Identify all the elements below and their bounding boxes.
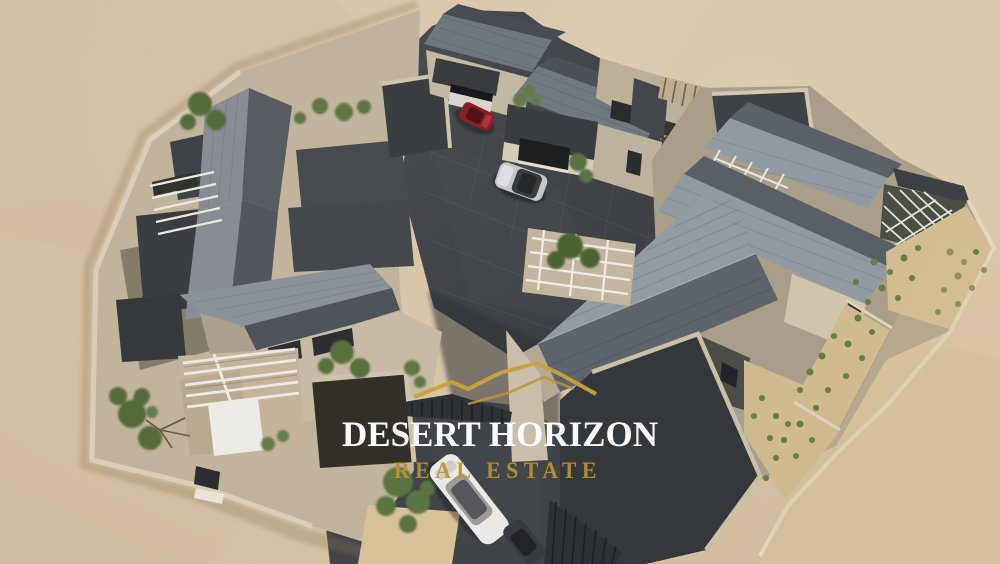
svg-text:DESERT HORIZON: DESERT HORIZON bbox=[342, 414, 658, 454]
svg-text:REAL ESTATE: REAL ESTATE bbox=[394, 458, 602, 483]
